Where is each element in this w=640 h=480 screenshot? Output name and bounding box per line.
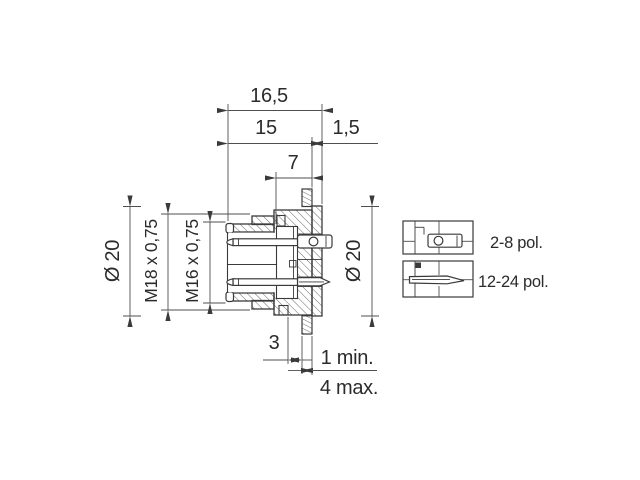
barrel-lip-bottom — [226, 292, 234, 302]
dim-flange-thickness-label: 1,5 — [333, 117, 360, 139]
panel-wall-top — [302, 189, 312, 207]
diameter-left-label: Ø 20 — [102, 240, 124, 282]
diameter-right-label: Ø 20 — [343, 240, 365, 282]
legend-label-2-8-pol: 2-8 pol. — [490, 234, 543, 252]
panel-max-label: 4 max. — [320, 377, 378, 399]
dimension-front-length: 15 — [228, 117, 312, 144]
dim-total-length-label: 16,5 — [250, 85, 288, 107]
dimension-key-length: 3 — [263, 332, 312, 360]
thread-collar-bottom — [252, 301, 274, 310]
barrel-wall-bottom — [228, 293, 275, 301]
dimension-total-length: 16,5 — [228, 85, 322, 111]
legend-label-12-24-pol: 12-24 pol. — [478, 273, 548, 291]
pin-shaft-top — [233, 239, 298, 246]
dimension-diameter-left: Ø 20 — [102, 207, 130, 317]
dimension-thread-inner: M16 x 0,75 — [182, 219, 210, 303]
dim-key-label: 3 — [269, 332, 280, 354]
barrel-wall-top — [228, 224, 275, 232]
dimension-insert-depth: 7 — [276, 152, 312, 178]
thread-outer-label: M18 x 0,75 — [141, 219, 161, 303]
pin-shaft-bottom — [233, 279, 298, 286]
thread-inner-label: M16 x 0,75 — [182, 219, 202, 303]
dimension-flange-thickness: 1,5 — [322, 117, 378, 144]
flat-solder-contact-icon — [403, 261, 473, 297]
legend-item-12-24-pol: 12-24 pol. — [403, 261, 548, 297]
barrel-lip-top — [226, 224, 234, 234]
dimension-diameter-right: Ø 20 — [343, 207, 372, 317]
round-solder-contact-icon — [403, 221, 473, 254]
mounting-flange — [312, 206, 322, 316]
technical-drawing-page: 16,5 15 1,5 7 Ø 20 M18 x 0,75 M16 x 0,75… — [0, 0, 640, 480]
thread-collar-top — [252, 216, 274, 225]
insert-cavity — [276, 226, 298, 299]
panel-min-label: 1 min. — [321, 347, 374, 369]
connector-technical-drawing: 16,5 15 1,5 7 Ø 20 M18 x 0,75 M16 x 0,75… — [0, 0, 640, 480]
dimension-thread-outer: M18 x 0,75 — [141, 214, 168, 310]
solder-cup-hole — [309, 237, 318, 246]
connector-section-view — [226, 206, 332, 316]
dim-insert-depth-label: 7 — [288, 152, 299, 174]
dim-front-length-label: 15 — [255, 117, 277, 139]
dimension-panel-thickness: 1 min. 4 max. — [288, 347, 378, 399]
bottom-contact-pin — [227, 278, 330, 286]
panel-wall-bottom — [302, 316, 312, 334]
legend-item-2-8-pol: 2-8 pol. — [403, 221, 543, 254]
